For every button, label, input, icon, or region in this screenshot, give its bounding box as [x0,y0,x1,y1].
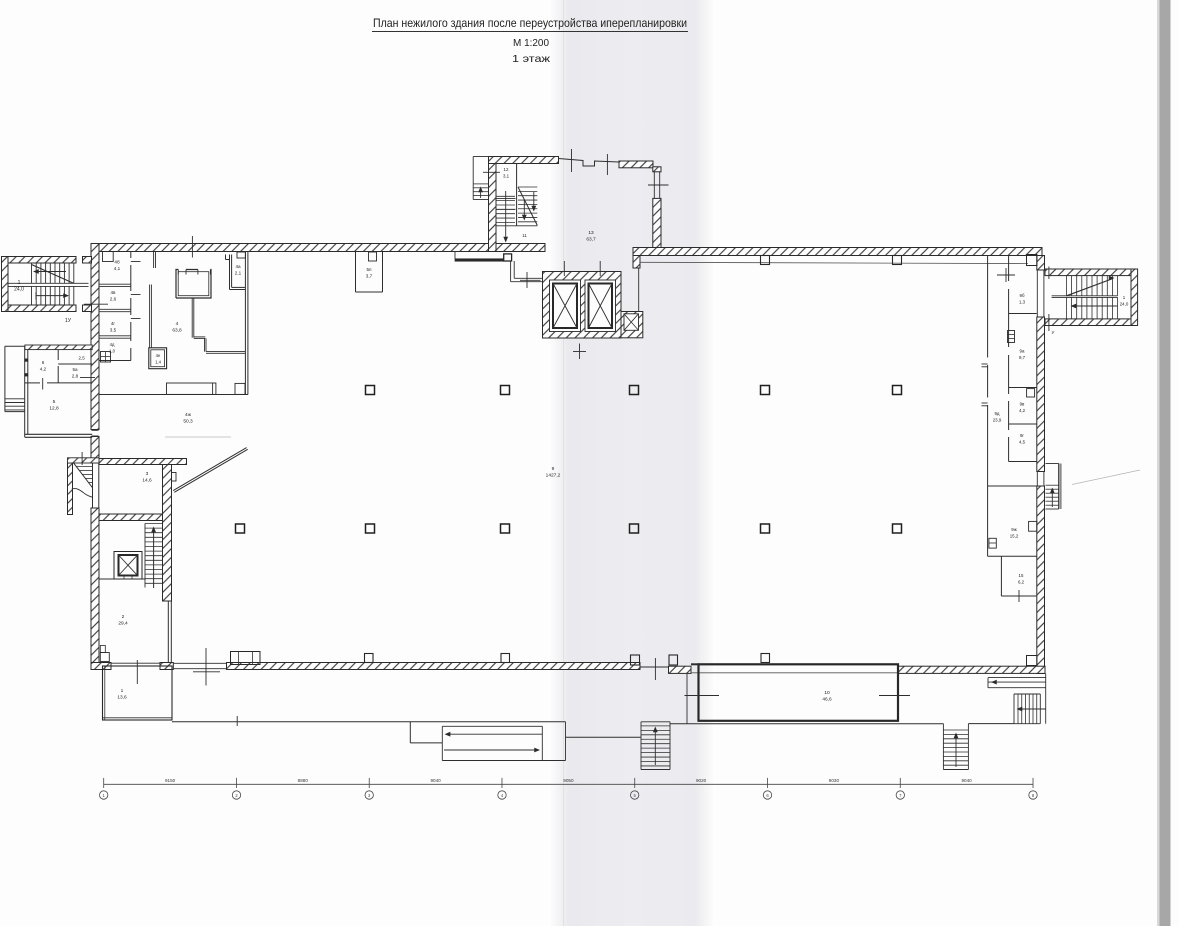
svg-text:23,9: 23,9 [993,418,1002,423]
svg-text:1,4: 1,4 [155,360,161,365]
svg-text:1 этаж: 1 этаж [512,53,550,65]
svg-text:4,2: 4,2 [1019,408,1026,413]
svg-text:М 1:200: М 1:200 [513,37,549,49]
svg-text:50,3: 50,3 [183,419,193,425]
svg-text:5п: 5п [366,267,372,272]
svg-text:4б: 4б [114,260,120,265]
svg-text:1,0: 1,0 [109,349,115,354]
svg-text:2,6: 2,6 [110,297,117,302]
svg-text:4ж: 4ж [185,412,192,418]
svg-text:9150: 9150 [165,778,176,783]
svg-text:4,1: 4,1 [114,266,121,271]
svg-text:9а: 9а [1020,349,1025,354]
svg-text:2,5: 2,5 [79,356,86,361]
svg-text:9б: 9б [1020,293,1025,298]
svg-text:1427,2: 1427,2 [546,473,561,479]
svg-text:2: 2 [122,614,125,620]
svg-text:13,6: 13,6 [117,695,127,701]
svg-text:3,7: 3,7 [366,274,373,279]
svg-text:1,3: 1,3 [1019,300,1026,305]
svg-text:9г: 9г [1020,433,1024,438]
svg-text:63,8: 63,8 [172,328,182,334]
svg-text:6,2: 6,2 [1018,580,1025,585]
svg-text:5а: 5а [72,367,78,372]
svg-text:4е: 4е [156,353,161,358]
svg-text:3,5: 3,5 [110,328,117,333]
svg-text:1У: 1У [65,318,72,324]
svg-text:9в: 9в [1020,402,1025,407]
svg-text:1: 1 [18,280,21,286]
svg-text:29,4: 29,4 [118,621,128,627]
svg-text:15: 15 [1019,573,1024,578]
svg-text:9,7: 9,7 [1019,355,1026,360]
svg-text:2,1: 2,1 [235,271,242,276]
svg-text:9: 9 [552,466,555,472]
svg-text:4д: 4д [110,342,115,347]
svg-text:24,0: 24,0 [14,287,24,293]
svg-text:6: 6 [42,360,45,365]
svg-text:13: 13 [588,230,594,236]
svg-text:4,5: 4,5 [1019,440,1026,445]
svg-text:12,8: 12,8 [49,406,59,412]
svg-text:14,6: 14,6 [142,478,152,484]
svg-text:4: 4 [176,321,179,327]
svg-text:У: У [1052,330,1055,335]
svg-text:15,2: 15,2 [1010,534,1019,539]
svg-text:11: 11 [522,233,527,238]
svg-text:5: 5 [53,399,56,405]
svg-text:12: 12 [504,167,509,172]
svg-text:10: 10 [824,690,830,696]
svg-text:4,2: 4,2 [40,367,47,372]
svg-text:9030: 9030 [829,778,840,783]
svg-text:4в: 4в [111,290,117,295]
svg-text:9д: 9д [994,411,999,416]
svg-text:План нежилого здания после пер: План нежилого здания после переустройств… [373,16,687,30]
svg-text:9040: 9040 [961,778,972,783]
svg-text:1: 1 [121,688,124,694]
svg-text:46,6: 46,6 [822,697,832,703]
svg-text:8880: 8880 [298,778,309,783]
svg-text:9040: 9040 [430,778,441,783]
svg-text:2,8: 2,8 [72,374,79,379]
svg-text:9ж: 9ж [1011,527,1016,532]
svg-text:24,0: 24,0 [1120,302,1129,307]
svg-text:4г: 4г [111,321,116,326]
svg-text:3: 3 [146,471,149,477]
svg-text:9050: 9050 [563,778,574,783]
svg-text:63,7: 63,7 [586,237,596,243]
svg-text:4а: 4а [235,264,241,269]
svg-text:9020: 9020 [696,778,707,783]
svg-text:3,1: 3,1 [503,174,510,179]
